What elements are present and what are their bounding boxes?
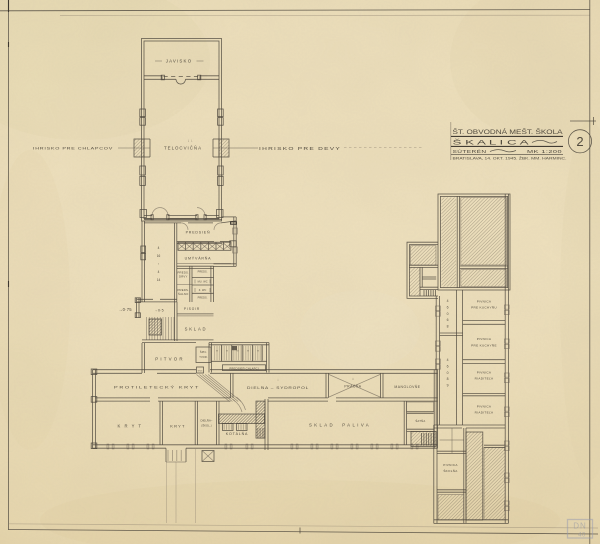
svg-text:ŠATŇA: ŠATŇA <box>415 418 425 423</box>
svg-text:KRYT: KRYT <box>170 424 185 429</box>
svg-text:4: 4 <box>447 299 449 303</box>
svg-text:ŠT. OBVODNÁ MEŠT. ŠKOLA: ŠT. OBVODNÁ MEŠT. ŠKOLA <box>453 127 564 136</box>
svg-text:PRE KUCHYŇU: PRE KUCHYŇU <box>471 306 497 310</box>
svg-text:→0·75: →0·75 <box>118 307 132 312</box>
svg-text:DIELŇA–: DIELŇA– <box>201 419 213 423</box>
svg-text:9: 9 <box>447 384 449 388</box>
svg-text:PITVOR: PITVOR <box>155 357 185 362</box>
svg-text:→0·5: →0·5 <box>154 309 164 313</box>
svg-text:40: 40 <box>578 533 586 539</box>
svg-text:PREDS.: PREDS. <box>198 270 208 273</box>
svg-text:PREDS.: PREDS. <box>198 296 208 299</box>
svg-text:SKLAD: SKLAD <box>185 327 208 332</box>
svg-text:0: 0 <box>447 371 449 375</box>
svg-text:UMÝVÁRŇA: UMÝVÁRŇA <box>185 256 212 260</box>
svg-text:0: 0 <box>447 312 449 316</box>
svg-text:4: 4 <box>158 246 160 250</box>
svg-text:PREDSIEŇ: PREDSIEŇ <box>186 231 211 235</box>
svg-text:MU. WC: MU. WC <box>198 281 208 284</box>
svg-text:PROTILETECKÝ KRYT: PROTILETECKÝ KRYT <box>114 385 200 390</box>
svg-text:6: 6 <box>447 305 449 309</box>
svg-text:4: 4 <box>158 270 160 274</box>
svg-text:SÚTERÉN: SÚTERÉN <box>453 148 487 155</box>
svg-text:PIVNICA: PIVNICA <box>443 463 458 467</box>
svg-text:SKLAD PALIVA: SKLAD PALIVA <box>309 423 371 428</box>
svg-text:TELOCVIČŇA: TELOCVIČŇA <box>164 146 202 151</box>
svg-text:MANGLOVŇE: MANGLOVŇE <box>394 385 420 389</box>
svg-text:DN: DN <box>573 522 587 531</box>
svg-text:DRVY: DRVY <box>179 275 188 279</box>
svg-text:6: 6 <box>447 318 449 322</box>
svg-text:BRATISLAVA, 14. OKT. 1945. Ž: BRATISLAVA, 14. OKT. 1945. ŽBK. MM. HARM… <box>453 156 567 161</box>
svg-text:IHRISKO PRE CHLAPCOV: IHRISKO PRE CHLAPCOV <box>33 146 113 151</box>
svg-text:PISOIR: PISOIR <box>184 307 200 311</box>
svg-text:2: 2 <box>576 134 583 149</box>
svg-text:ŠKOLŇA: ŠKOLŇA <box>443 468 458 473</box>
svg-text:RIADITEĽA: RIADITEĽA <box>475 411 494 415</box>
svg-text:Š K A L I C A: Š K A L I C A <box>453 138 531 147</box>
svg-text:Ž. WC: Ž. WC <box>199 289 207 292</box>
svg-text:RIADITEĽA: RIADITEĽA <box>475 377 494 381</box>
svg-text:8: 8 <box>447 377 449 381</box>
svg-text:4: 4 <box>447 358 449 362</box>
svg-text:6: 6 <box>447 364 449 368</box>
svg-text:IHRISKO PRE DEVY: IHRISKO PRE DEVY <box>259 146 341 151</box>
svg-text:TVOR.: TVOR. <box>199 355 208 359</box>
svg-text:JAVISKO: JAVISKO <box>166 59 193 64</box>
svg-text:↓↓: ↓↓ <box>188 139 194 143</box>
svg-text:PIVNICA: PIVNICA <box>477 337 492 341</box>
svg-text:PIVNICA: PIVNICA <box>477 300 492 304</box>
svg-text:K R Y T: K R Y T <box>118 424 143 429</box>
svg-text:PRE KUCHYŇE: PRE KUCHYŇE <box>471 344 497 348</box>
svg-text:8: 8 <box>447 325 449 329</box>
svg-text:PIVNICA: PIVNICA <box>477 405 492 409</box>
svg-text:PIVNICA: PIVNICA <box>477 371 492 375</box>
svg-text:16: 16 <box>157 254 161 258</box>
svg-text:14: 14 <box>157 278 161 282</box>
svg-text:KOTÁLŇA: KOTÁLŇA <box>226 432 248 436</box>
svg-text:DIELŇA – SYDROPOL: DIELŇA – SYDROPOL <box>247 386 309 390</box>
svg-text:ŠALNO: ŠALNO <box>178 291 189 296</box>
